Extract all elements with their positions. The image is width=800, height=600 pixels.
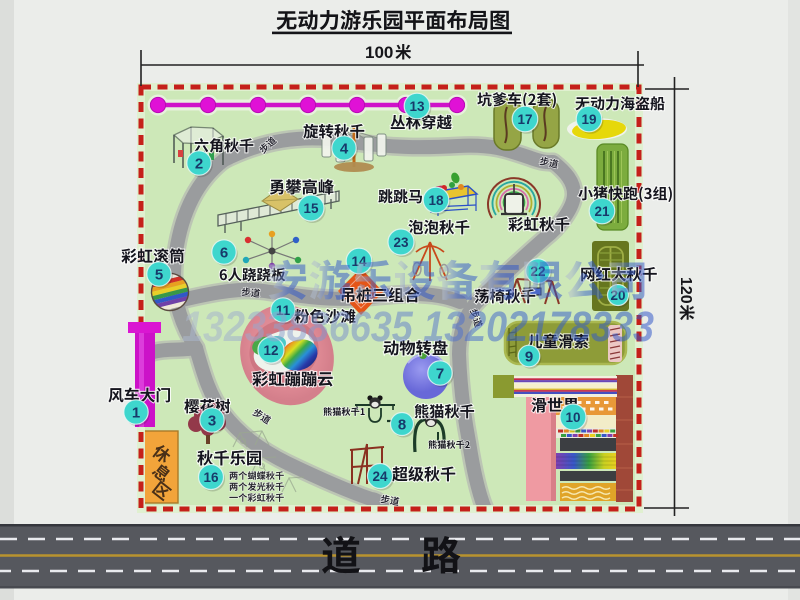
svg-text:2: 2	[195, 155, 203, 172]
svg-text:13233886635 13202178333: 13233886635 13202178333	[182, 303, 654, 351]
svg-text:120: 120	[677, 277, 694, 304]
svg-text:13: 13	[409, 99, 425, 114]
svg-text:21: 21	[594, 204, 610, 219]
svg-text:4: 4	[340, 140, 349, 157]
svg-text:100: 100	[365, 43, 393, 62]
svg-text:18: 18	[428, 193, 444, 208]
svg-text:19: 19	[581, 112, 596, 127]
svg-text:10: 10	[565, 410, 580, 425]
svg-text:6: 6	[220, 244, 228, 261]
svg-text:15: 15	[303, 201, 319, 216]
svg-text:8: 8	[398, 416, 406, 433]
svg-text:24: 24	[372, 469, 388, 484]
svg-text:3: 3	[208, 412, 216, 429]
svg-text:7: 7	[436, 365, 444, 382]
svg-text:23: 23	[393, 235, 409, 250]
svg-text:5: 5	[155, 266, 163, 283]
svg-text:1: 1	[132, 404, 140, 421]
svg-text:16: 16	[203, 470, 219, 485]
svg-text:17: 17	[517, 112, 532, 127]
